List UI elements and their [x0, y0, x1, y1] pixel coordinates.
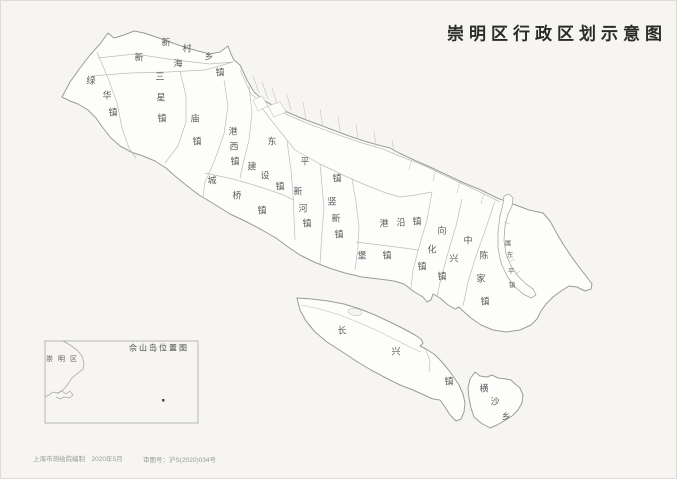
- town-label-char: 向: [437, 227, 446, 236]
- town-label-char: 镇: [302, 220, 311, 229]
- town-label-char: 东: [507, 253, 514, 260]
- town-label-char: 新: [331, 215, 340, 224]
- town-label-char: 城: [207, 177, 216, 186]
- town-label-char: 桥: [232, 192, 241, 201]
- town-label-char: 长: [337, 327, 346, 336]
- town-label-char: 镇: [108, 109, 117, 118]
- map-page: 崇明区行政区划示意图 新村乡新海镇绿华镇三星镇庙镇港西镇建设镇城桥镇东平镇新河镇…: [0, 0, 677, 479]
- town-label-char: 庙: [190, 115, 199, 124]
- town-label-char: 横: [479, 385, 488, 394]
- town-label-char: 绿: [86, 77, 95, 86]
- inset-title: 佘山岛位置图: [129, 343, 189, 354]
- town-label-char: 沙: [490, 398, 499, 407]
- town-label-char: 河: [298, 205, 307, 214]
- town-label-char: 镇: [382, 252, 391, 261]
- town-label-char: 村: [182, 45, 191, 54]
- town-label-char: 建: [247, 163, 256, 172]
- sheshan-island-dot: [162, 399, 165, 402]
- town-label-char: 东: [267, 138, 276, 147]
- town-label-char: 镇: [215, 69, 224, 78]
- town-label-char: 镇: [444, 378, 453, 387]
- town-label-char: 沿: [396, 219, 405, 228]
- town-label-char: 平: [300, 158, 309, 167]
- town-label-char: 镇: [437, 273, 446, 282]
- town-label-char: 镇: [480, 298, 489, 307]
- town-label-char: 新: [134, 54, 143, 63]
- town-label-char: 镇: [257, 207, 266, 216]
- town-label-char: 镇: [192, 138, 201, 147]
- town-label-char: 港: [228, 128, 237, 137]
- administrative-map-canvas: [0, 0, 677, 479]
- town-label-char: 镇: [417, 263, 426, 272]
- town-label-char: 三: [155, 73, 164, 82]
- town-label-char: 乡: [204, 53, 213, 62]
- town-label-char: 兴: [391, 348, 400, 357]
- changxing-island-outline: [297, 298, 465, 421]
- town-label-char: 镇: [412, 218, 421, 227]
- page-title: 崇明区行政区划示意图: [447, 20, 667, 45]
- town-label-char: 港: [379, 220, 388, 229]
- town-label-char: 堡: [357, 252, 366, 261]
- town-label-char: 陈: [479, 252, 488, 261]
- town-label-char: 新: [161, 39, 170, 48]
- town-label-char: 海: [173, 60, 182, 69]
- credit-publisher: 上海市测绘院编制 2020年5月: [33, 457, 123, 464]
- town-label-char: 镇: [334, 231, 343, 240]
- town-label-char: 家: [476, 275, 485, 284]
- town-label-char: 镇: [332, 175, 341, 184]
- inset-coastline: [45, 341, 84, 397]
- town-label-char: 平: [508, 269, 515, 276]
- town-label-char: 设: [260, 172, 269, 181]
- town-label-char: 化: [427, 246, 436, 255]
- town-label-char: 镇: [230, 158, 239, 167]
- town-label-char: 中: [463, 237, 472, 246]
- town-label-char: 兴: [449, 255, 458, 264]
- town-label-char: 西: [229, 143, 238, 152]
- town-label-char: 乡: [501, 413, 510, 422]
- credit-approval-number: 审图号：沪S(2020)034号: [143, 458, 216, 465]
- town-label-char: 镇: [157, 115, 166, 124]
- town-label-char: 星: [156, 94, 165, 103]
- town-label-char: 属: [505, 241, 512, 248]
- town-label-char: 镇: [509, 283, 516, 290]
- town-label-char: 镇: [275, 183, 284, 192]
- town-label-char: 新: [293, 188, 302, 197]
- inset-coast-wiggle: [56, 391, 73, 399]
- town-label-char: 华: [102, 92, 111, 101]
- town-label-char: 竖: [327, 198, 336, 207]
- inset-region-label: 崇明区: [46, 354, 82, 364]
